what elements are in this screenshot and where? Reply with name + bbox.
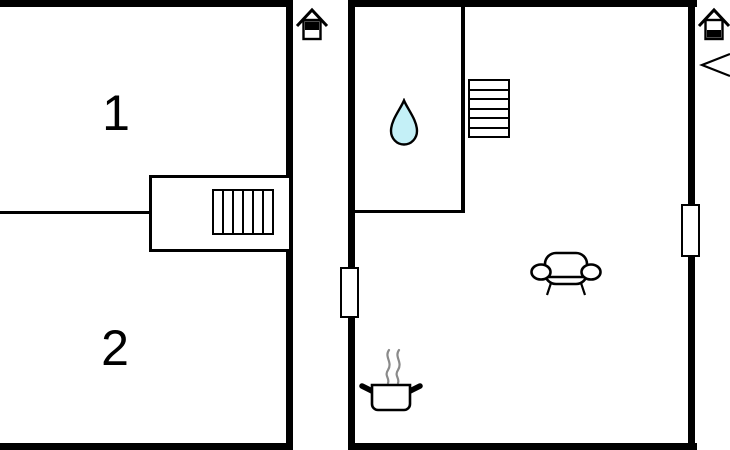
ground-plan-top-wall bbox=[348, 0, 697, 7]
cooking-pot-icon bbox=[356, 344, 426, 412]
floor-indicator-upper-icon bbox=[295, 6, 329, 44]
sofa-icon bbox=[530, 250, 602, 298]
entrance-arrow-icon bbox=[699, 51, 730, 79]
window-right-wall bbox=[681, 204, 700, 257]
room-2-label: 2 bbox=[101, 323, 129, 373]
staircase-upper-icon bbox=[212, 189, 274, 235]
window-left-wall bbox=[340, 267, 359, 318]
upper-plan-bottom-wall bbox=[0, 443, 292, 450]
floor-plan-canvas: 1 2 bbox=[0, 0, 730, 450]
bathroom-bottom-wall bbox=[352, 210, 465, 213]
upper-plan-top-wall bbox=[0, 0, 292, 7]
upper-plan-room-divider-wall bbox=[0, 211, 152, 214]
staircase-ground-icon bbox=[468, 79, 510, 138]
steam-icon bbox=[387, 350, 400, 383]
bathroom-right-wall bbox=[461, 0, 465, 213]
ground-plan-left-wall bbox=[348, 0, 355, 450]
water-drop-icon bbox=[388, 98, 420, 147]
room-1-label: 1 bbox=[102, 88, 130, 138]
floor-indicator-ground-icon bbox=[697, 6, 730, 44]
ground-plan-bottom-wall bbox=[348, 443, 697, 450]
